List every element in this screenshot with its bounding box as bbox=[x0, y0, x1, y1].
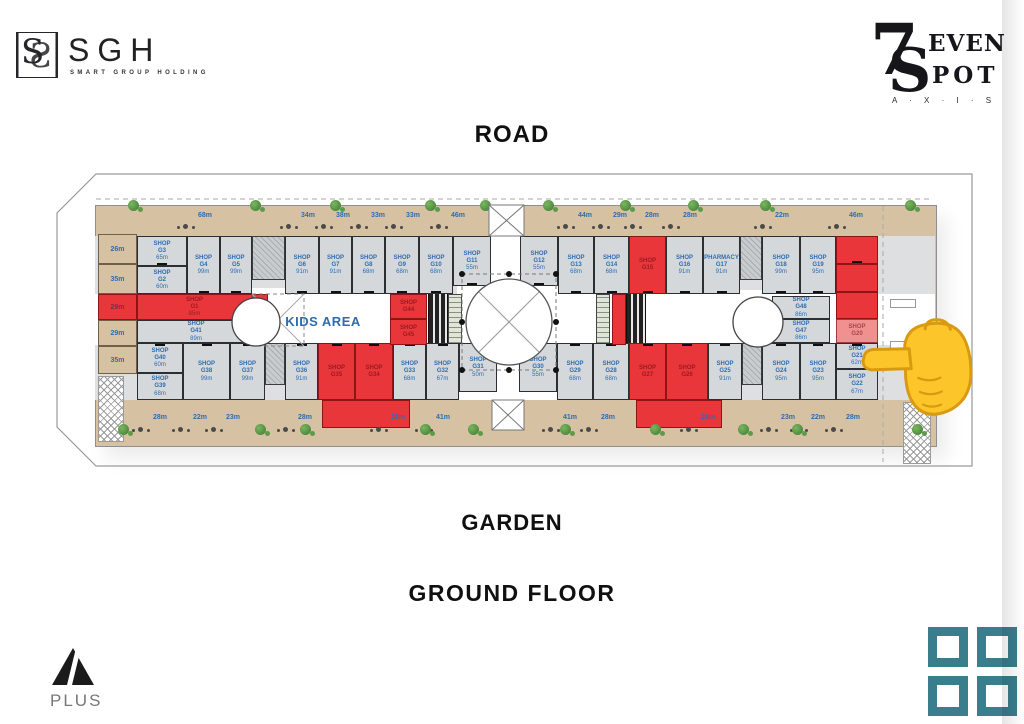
terrace-area-label: 29m bbox=[605, 212, 635, 219]
terrace-furniture-icon bbox=[548, 427, 553, 432]
shop-g32: SHOP G3267m bbox=[426, 343, 459, 400]
terrace-area-label: 28m bbox=[290, 414, 320, 421]
shop-g29: SHOP G2968m bbox=[557, 343, 593, 400]
shop-g1: SHOP G185m bbox=[137, 294, 252, 320]
terrace-furniture-icon bbox=[376, 427, 381, 432]
terrace-furniture-icon bbox=[831, 427, 836, 432]
shop-g30: SHOP G3055m bbox=[519, 343, 557, 392]
terrace-area-label: 33m bbox=[398, 212, 428, 219]
teal-square-icon bbox=[928, 627, 968, 667]
shop-g25: SHOP G2591m bbox=[708, 343, 742, 400]
plant-icon bbox=[760, 200, 771, 211]
teal-square-icon bbox=[928, 676, 968, 716]
shop-g36: SHOP G3691m bbox=[285, 343, 318, 400]
terrace-area-label: 28m bbox=[637, 212, 667, 219]
terrace-area-label: 28m bbox=[383, 414, 413, 421]
shop-g16: SHOP G1691m bbox=[666, 236, 703, 294]
shop-g33: SHOP G3368m bbox=[393, 343, 426, 400]
a-plus-logo: PLUS bbox=[48, 645, 118, 715]
terrace-area-label: 46m bbox=[841, 212, 871, 219]
terrace-area-label: 28m bbox=[675, 212, 705, 219]
terrace-area-label: 44m bbox=[570, 212, 600, 219]
shop-g10: SHOP G1068m bbox=[419, 236, 453, 294]
side-area-cell: 29m bbox=[98, 294, 137, 320]
shop-g18: SHOP G1899m bbox=[762, 236, 800, 294]
shop-g11: SHOP G1155m bbox=[453, 236, 491, 286]
plant-icon bbox=[250, 200, 261, 211]
terrace-furniture-icon bbox=[563, 224, 568, 229]
shop-g19: SHOP G1995m bbox=[800, 236, 836, 294]
plant-icon bbox=[255, 424, 266, 435]
plant-icon bbox=[650, 424, 661, 435]
terrace-furniture-icon bbox=[391, 224, 396, 229]
shop-g13: SHOP G1368m bbox=[558, 236, 594, 294]
terrace-furniture-icon bbox=[686, 427, 691, 432]
shop-g38: SHOP G3899m bbox=[183, 343, 230, 400]
terrace-furniture-icon bbox=[211, 427, 216, 432]
terrace-area-label: 22m bbox=[767, 212, 797, 219]
terrace-area-label: 22m bbox=[803, 414, 833, 421]
plant-icon bbox=[688, 200, 699, 211]
plant-icon bbox=[738, 424, 749, 435]
shop-g34: SHOP G34 bbox=[355, 343, 393, 400]
terrace-area-label: 33m bbox=[363, 212, 393, 219]
terrace-area-label: 41m bbox=[555, 414, 585, 421]
red-unit bbox=[836, 264, 878, 292]
a-plus-triangle-icon bbox=[48, 645, 98, 689]
plant-icon bbox=[468, 424, 479, 435]
shop-g35: SHOP G35 bbox=[318, 343, 355, 400]
side-area-cell: 26m bbox=[98, 234, 137, 264]
shop-g3: SHOP G365m bbox=[137, 236, 187, 266]
terrace-area-label: 22m bbox=[185, 414, 215, 421]
shop-g48: SHOP G4886m bbox=[772, 296, 830, 319]
shop-g6: SHOP G691m bbox=[285, 236, 319, 294]
terrace-area-label: 28m bbox=[593, 414, 623, 421]
terrace-area-label: 28m bbox=[693, 414, 723, 421]
plant-icon bbox=[560, 424, 571, 435]
terrace-area-label: 23m bbox=[773, 414, 803, 421]
terrace-furniture-icon bbox=[760, 224, 765, 229]
shop-g5: SHOP G599m bbox=[220, 236, 252, 294]
terrace-area-label: 46m bbox=[443, 212, 473, 219]
terrace-furniture-icon bbox=[183, 224, 188, 229]
shop-g37: SHOP G3799m bbox=[230, 343, 265, 400]
terrace-area-label: 34m bbox=[293, 212, 323, 219]
terrace-area-label: 38m bbox=[328, 212, 358, 219]
plant-icon bbox=[905, 200, 916, 211]
sheet-edge-shadow bbox=[1002, 0, 1024, 724]
terrace-furniture-icon bbox=[356, 224, 361, 229]
terrace-area-label: 23m bbox=[218, 414, 248, 421]
terrace-area-label: 28m bbox=[145, 414, 175, 421]
shop-g4: SHOP G499m bbox=[187, 236, 220, 294]
plant-icon bbox=[118, 424, 129, 435]
red-unit bbox=[612, 294, 626, 345]
terrace-furniture-icon bbox=[178, 427, 183, 432]
shop-g27: SHOP G27 bbox=[629, 343, 666, 400]
terrace-furniture-icon bbox=[286, 224, 291, 229]
terrace-furniture-icon bbox=[766, 427, 771, 432]
terrace-furniture-icon bbox=[283, 427, 288, 432]
terrace-area-label: 41m bbox=[428, 414, 458, 421]
shop-g44: SHOP G44 bbox=[390, 294, 427, 319]
plant-icon bbox=[480, 200, 491, 211]
plant-icon bbox=[300, 424, 311, 435]
shop-g28: SHOP G2868m bbox=[593, 343, 629, 400]
shop-g31: SHOP G3150m bbox=[459, 343, 497, 392]
plant-icon bbox=[543, 200, 554, 211]
shop-g17: PHARMACY G1791m bbox=[703, 236, 740, 294]
shop-g39: SHOP G3968m bbox=[137, 373, 183, 400]
side-area-cell: 29m bbox=[98, 320, 137, 346]
shop-g47: SHOP G4786m bbox=[772, 319, 830, 343]
side-area-cell: 35m bbox=[98, 264, 137, 294]
shop-g2: SHOP G260m bbox=[137, 266, 187, 294]
shop-g14: SHOP G1468m bbox=[594, 236, 629, 294]
terrace-furniture-icon bbox=[436, 224, 441, 229]
shop-g7: SHOP G791m bbox=[319, 236, 352, 294]
terrace-furniture-icon bbox=[321, 224, 326, 229]
side-area-cell: 35m bbox=[98, 346, 137, 374]
shop-g12: SHOP G1255m bbox=[520, 236, 558, 286]
pointing-hand-icon bbox=[855, 314, 981, 436]
shop-g24: SHOP G2495m bbox=[762, 343, 800, 400]
shop-g23: SHOP G2395m bbox=[800, 343, 836, 400]
plant-icon bbox=[792, 424, 803, 435]
kids-area-label: KIDS AREA bbox=[268, 314, 378, 329]
plant-icon bbox=[330, 200, 341, 211]
shop-g15: SHOP G15 bbox=[629, 236, 666, 294]
page: ROAD GARDEN GROUND FLOOR S S SGH SMART G… bbox=[0, 0, 1024, 724]
terrace-furniture-icon bbox=[834, 224, 839, 229]
shop-g40: SHOP G4060m bbox=[137, 343, 183, 373]
plant-icon bbox=[620, 200, 631, 211]
terrace-area-label: 68m bbox=[190, 212, 220, 219]
a-plus-wordmark: PLUS bbox=[50, 691, 102, 711]
shop-g8: SHOP G868m bbox=[352, 236, 385, 294]
shop-g41: SHOP G4189m bbox=[137, 320, 255, 343]
terrace-furniture-icon bbox=[586, 427, 591, 432]
plant-icon bbox=[420, 424, 431, 435]
shop-g45: SHOP G45 bbox=[390, 319, 427, 345]
plant-icon bbox=[425, 200, 436, 211]
red-unit bbox=[836, 236, 878, 264]
plant-icon bbox=[128, 200, 139, 211]
terrace-furniture-icon bbox=[138, 427, 143, 432]
red-unit bbox=[836, 292, 878, 319]
shop-g26: SHOP G26 bbox=[666, 343, 708, 400]
terrace-furniture-icon bbox=[598, 224, 603, 229]
terrace-furniture-icon bbox=[630, 224, 635, 229]
shop-g9: SHOP G968m bbox=[385, 236, 419, 294]
terrace-furniture-icon bbox=[668, 224, 673, 229]
